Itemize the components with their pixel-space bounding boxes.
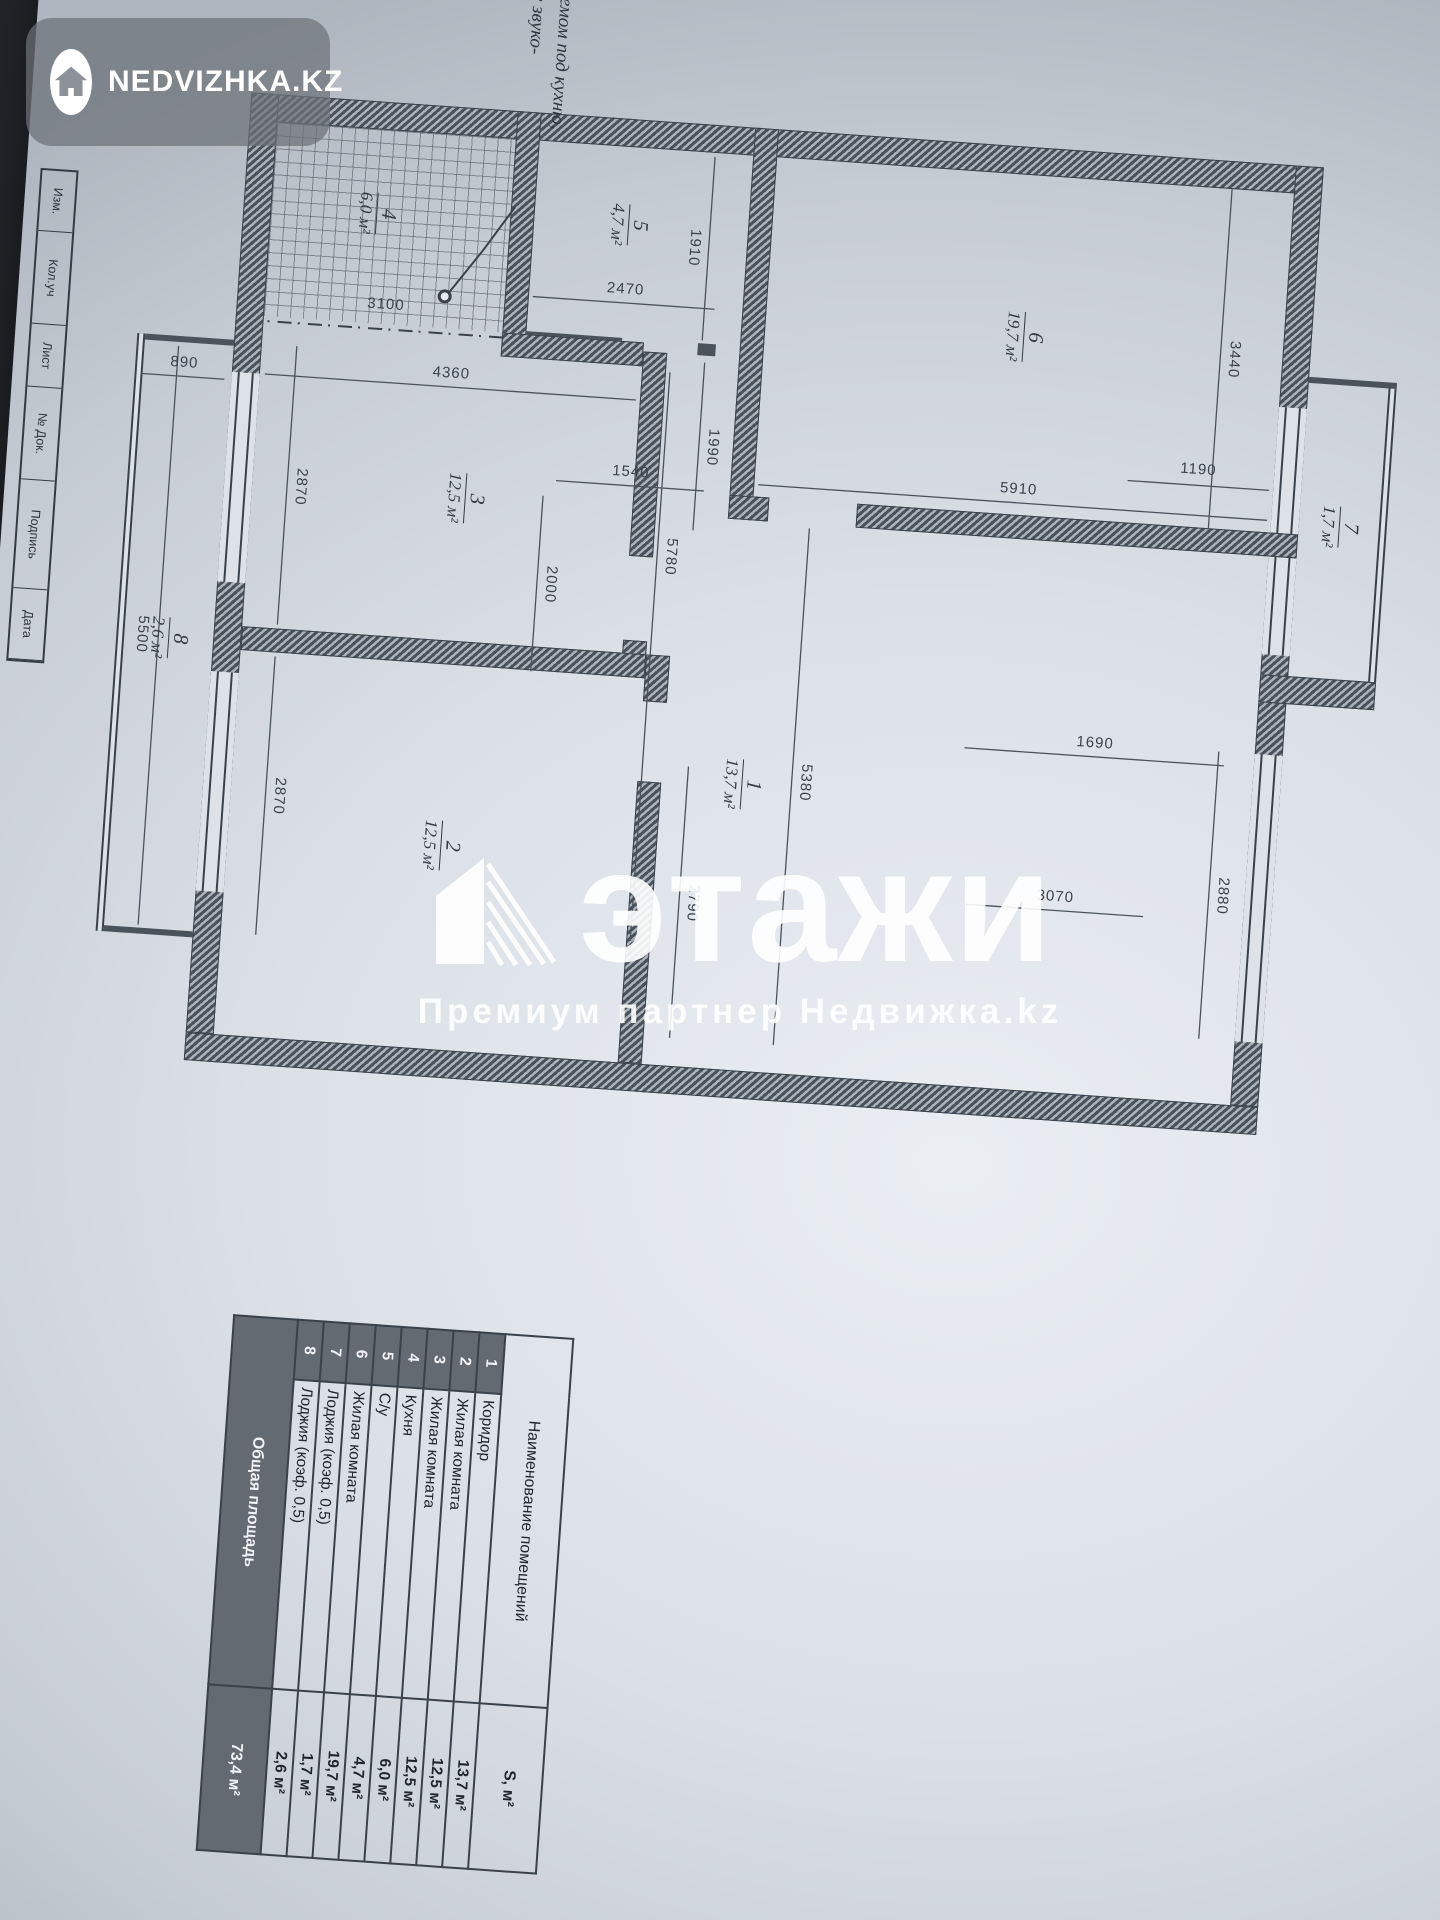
room-label-6: 6 19,7 м² xyxy=(1002,311,1049,364)
dim-1910: 1910 xyxy=(685,228,705,266)
dim-3440: 3440 xyxy=(1224,340,1244,378)
room-label-4: 4 6,0 м² xyxy=(355,191,402,235)
room-area: 4,7 м² xyxy=(607,203,630,246)
room-number: 6 xyxy=(1022,312,1049,364)
room-area: 13,7 м² xyxy=(720,758,743,809)
room-area: 1,7 м² xyxy=(1317,505,1340,548)
room-number: 3 xyxy=(463,473,490,525)
room-number: 5 xyxy=(627,204,654,247)
room-number: 1 xyxy=(740,759,767,811)
table-cell: 5 xyxy=(372,1325,402,1387)
dim-2870-left: 2870 xyxy=(291,468,311,506)
room-number: 8 xyxy=(167,617,194,660)
dim-1190: 1190 xyxy=(1180,460,1217,479)
room-label-1: 1 13,7 м² xyxy=(720,758,767,811)
stamp-cell: Подпись xyxy=(13,479,55,590)
dim-2000: 2000 xyxy=(541,565,561,603)
room-label-3: 3 12,5 м² xyxy=(443,472,490,525)
stamp-cell: Кол.уч xyxy=(32,231,72,326)
room-area: 12,5 м² xyxy=(443,472,466,523)
dim-1990: 1990 xyxy=(703,428,723,466)
badge-brand-text: NEDVIZHKA.KZ xyxy=(108,65,343,99)
table-cell: 4 xyxy=(398,1327,428,1389)
dim-5380: 5380 xyxy=(796,764,816,802)
room-label-7: 7 1,7 м² xyxy=(1317,505,1364,549)
stamp-cell: Изм. xyxy=(38,170,76,233)
table-cell: 6 xyxy=(346,1323,376,1385)
room-area: 19,7 м² xyxy=(1002,311,1025,362)
stamp-cell: Дата xyxy=(8,588,47,661)
dim-2470: 2470 xyxy=(606,279,644,299)
table-cell: 2 xyxy=(449,1331,479,1393)
table-footer-value: 73,4 м² xyxy=(197,1684,272,1854)
dim-2870-right: 2870 xyxy=(270,777,290,815)
nedvizhka-badge: NEDVIZHKA.KZ xyxy=(26,18,330,146)
dim-4360: 4360 xyxy=(432,363,470,383)
etazhi-watermark: этажи Премиум партнер Недвижка.kz xyxy=(300,826,1180,1032)
table-cell: 1 xyxy=(475,1332,505,1394)
room-area: 6,0 м² xyxy=(355,191,378,234)
watermark-subtitle: Премиум партнер Недвижка.kz xyxy=(300,992,1180,1032)
room-area: 2,6 м² xyxy=(147,616,170,659)
stamp-cell: № Док. xyxy=(21,387,61,482)
floorplan-photo: 3440 5910 1190 2880 1910 2470 1990 1540 … xyxy=(0,0,1440,1920)
room-number: 4 xyxy=(375,193,402,236)
table-cell: 8 xyxy=(294,1320,324,1382)
dim-2880: 2880 xyxy=(1213,877,1233,915)
stamp-cell: Лист xyxy=(27,324,65,389)
table-cell: 7 xyxy=(320,1321,350,1383)
dim-1540: 1540 xyxy=(612,462,650,482)
dim-5910: 5910 xyxy=(999,479,1037,499)
room-label-5: 5 4,7 м² xyxy=(607,203,654,247)
watermark-title: этажи xyxy=(579,826,1054,986)
dim-3100: 3100 xyxy=(367,295,405,315)
room-area-table: Наименование помещений S, м² 1Коридор13,… xyxy=(196,1314,575,1875)
dim-890: 890 xyxy=(170,353,199,372)
home-icon xyxy=(50,49,92,115)
dim-5780: 5780 xyxy=(661,538,681,576)
table-header-area: S, м² xyxy=(468,1703,547,1873)
dim-1690: 1690 xyxy=(1076,733,1114,753)
room-label-8: 8 2,6 м² xyxy=(147,616,194,660)
etazhi-logo-icon xyxy=(426,844,561,969)
room-number: 7 xyxy=(1337,507,1364,550)
table-cell: 3 xyxy=(423,1329,453,1391)
